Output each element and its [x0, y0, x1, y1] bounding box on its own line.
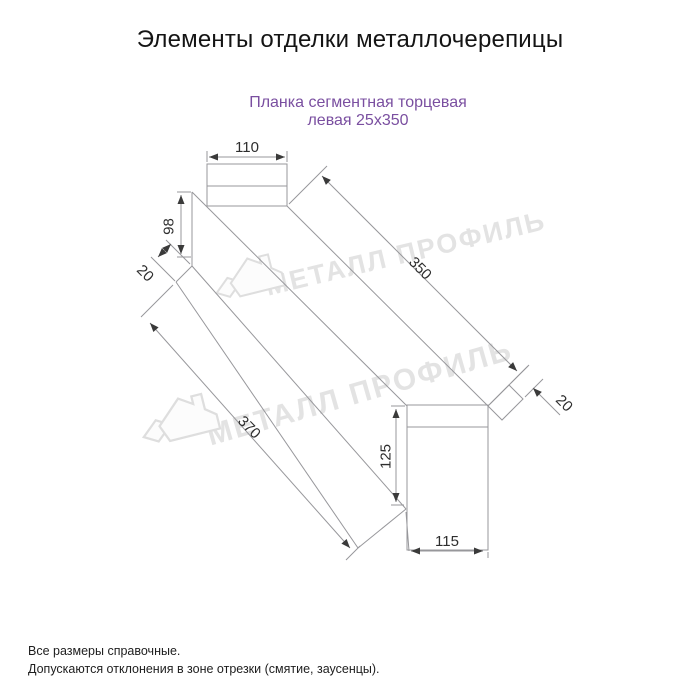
- left-hem-edge: [176, 266, 192, 282]
- footer-note-tolerance: Допускаются отклонения в зоне отрезки (с…: [28, 662, 380, 676]
- top-tab-outline: [207, 164, 287, 206]
- dim-label-height-left: 98: [161, 210, 178, 244]
- dim-label-hem-left: 20: [129, 258, 161, 290]
- footer-note-sizes: Все размеры справочные.: [28, 644, 180, 658]
- product-subtitle-line2: левая 25х350: [158, 112, 558, 130]
- dimension-20-right: [511, 365, 560, 415]
- dim-label-width-top: 110: [227, 139, 267, 156]
- right-hem-outline: [488, 385, 523, 420]
- dim-label-hem-right: 20: [548, 388, 580, 420]
- dim-label-width-bottom: 115: [427, 533, 467, 550]
- dim-label-height-right: 125: [378, 440, 395, 474]
- product-subtitle: Планка сегментная торцевая левая 25х350: [158, 94, 558, 130]
- bottom-tab-outline: [407, 405, 488, 550]
- dimension-98: [177, 192, 191, 257]
- right-end-bottom-edge: [358, 509, 406, 548]
- product-subtitle-line1: Планка сегментная торцевая: [158, 94, 558, 112]
- page-title: Элементы отделки металлочерепицы: [0, 26, 700, 54]
- catalog-page: Элементы отделки металлочерепицы Планка …: [0, 0, 700, 700]
